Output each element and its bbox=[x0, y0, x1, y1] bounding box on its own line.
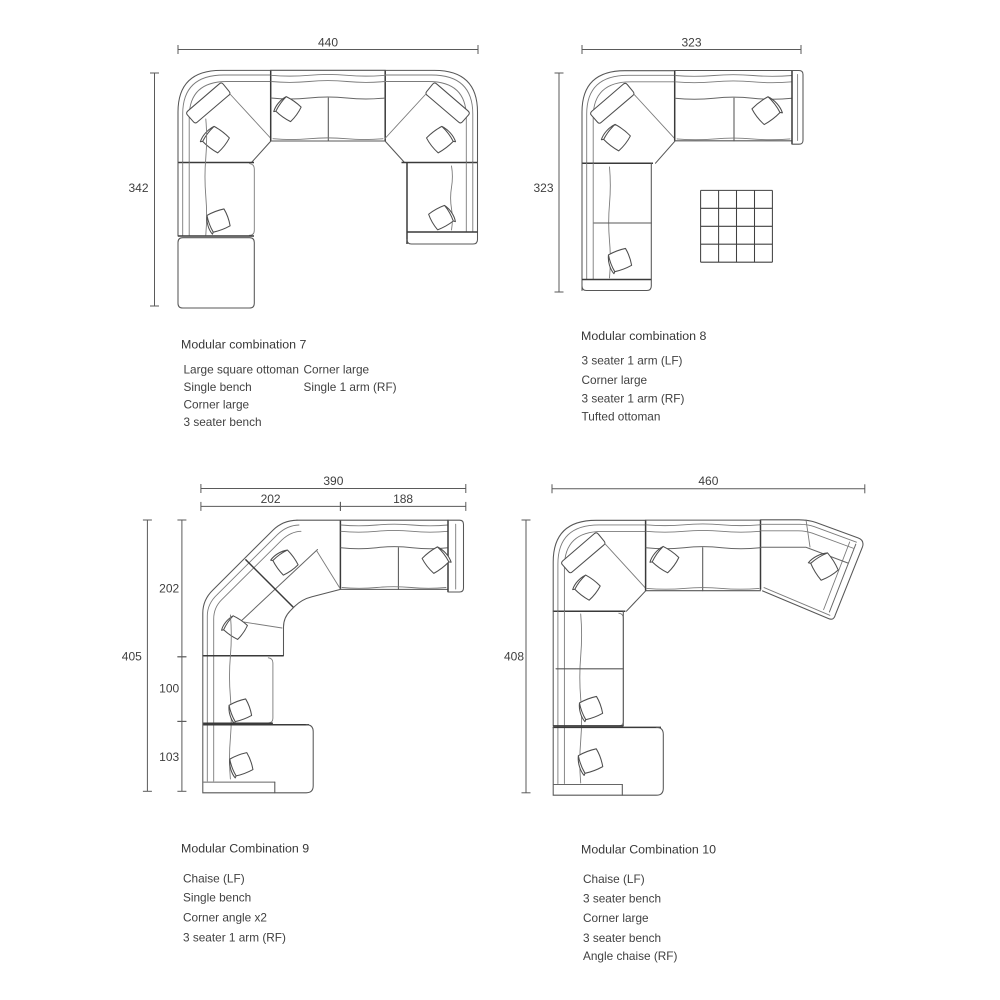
svg-text:3 seater bench: 3 seater bench bbox=[583, 891, 661, 905]
svg-text:Single bench: Single bench bbox=[183, 891, 251, 905]
svg-text:Corner angle x2: Corner angle x2 bbox=[183, 911, 267, 925]
svg-text:188: 188 bbox=[393, 492, 413, 506]
svg-text:460: 460 bbox=[698, 474, 718, 488]
svg-text:408: 408 bbox=[504, 650, 524, 664]
svg-text:3 seater 1 arm (RF): 3 seater 1 arm (RF) bbox=[183, 931, 286, 945]
svg-text:Corner large: Corner large bbox=[304, 363, 370, 377]
svg-text:3 seater 1 arm (LF): 3 seater 1 arm (LF) bbox=[582, 354, 683, 368]
svg-text:Chaise (LF): Chaise (LF) bbox=[183, 871, 245, 885]
svg-text:103: 103 bbox=[159, 750, 179, 764]
svg-text:Modular Combination 9: Modular Combination 9 bbox=[181, 842, 309, 856]
svg-text:440: 440 bbox=[318, 36, 338, 50]
svg-text:3 seater 1 arm (RF): 3 seater 1 arm (RF) bbox=[582, 392, 685, 406]
svg-text:342: 342 bbox=[128, 181, 148, 195]
svg-text:100: 100 bbox=[159, 681, 179, 695]
svg-text:Corner large: Corner large bbox=[184, 398, 250, 412]
svg-text:Corner large: Corner large bbox=[582, 373, 648, 387]
svg-text:3 seater bench: 3 seater bench bbox=[184, 415, 262, 429]
svg-text:Corner large: Corner large bbox=[583, 911, 649, 925]
svg-text:Angle chaise (RF): Angle chaise (RF) bbox=[583, 949, 677, 963]
svg-text:390: 390 bbox=[323, 474, 343, 488]
svg-text:Chaise (LF): Chaise (LF) bbox=[583, 872, 645, 886]
svg-text:Single bench: Single bench bbox=[184, 380, 252, 394]
svg-text:Large square ottoman: Large square ottoman bbox=[184, 363, 299, 377]
svg-text:323: 323 bbox=[681, 36, 701, 50]
svg-text:202: 202 bbox=[159, 582, 179, 596]
svg-text:Tufted ottoman: Tufted ottoman bbox=[582, 410, 661, 424]
svg-text:323: 323 bbox=[533, 181, 553, 195]
svg-text:202: 202 bbox=[261, 492, 281, 506]
svg-text:Single 1 arm (RF): Single 1 arm (RF) bbox=[304, 380, 397, 394]
svg-text:Modular combination 8: Modular combination 8 bbox=[581, 329, 706, 343]
svg-text:Modular Combination 10: Modular Combination 10 bbox=[581, 842, 716, 856]
svg-text:3 seater bench: 3 seater bench bbox=[583, 931, 661, 945]
svg-text:405: 405 bbox=[122, 650, 142, 664]
svg-text:Modular combination 7: Modular combination 7 bbox=[181, 338, 306, 352]
